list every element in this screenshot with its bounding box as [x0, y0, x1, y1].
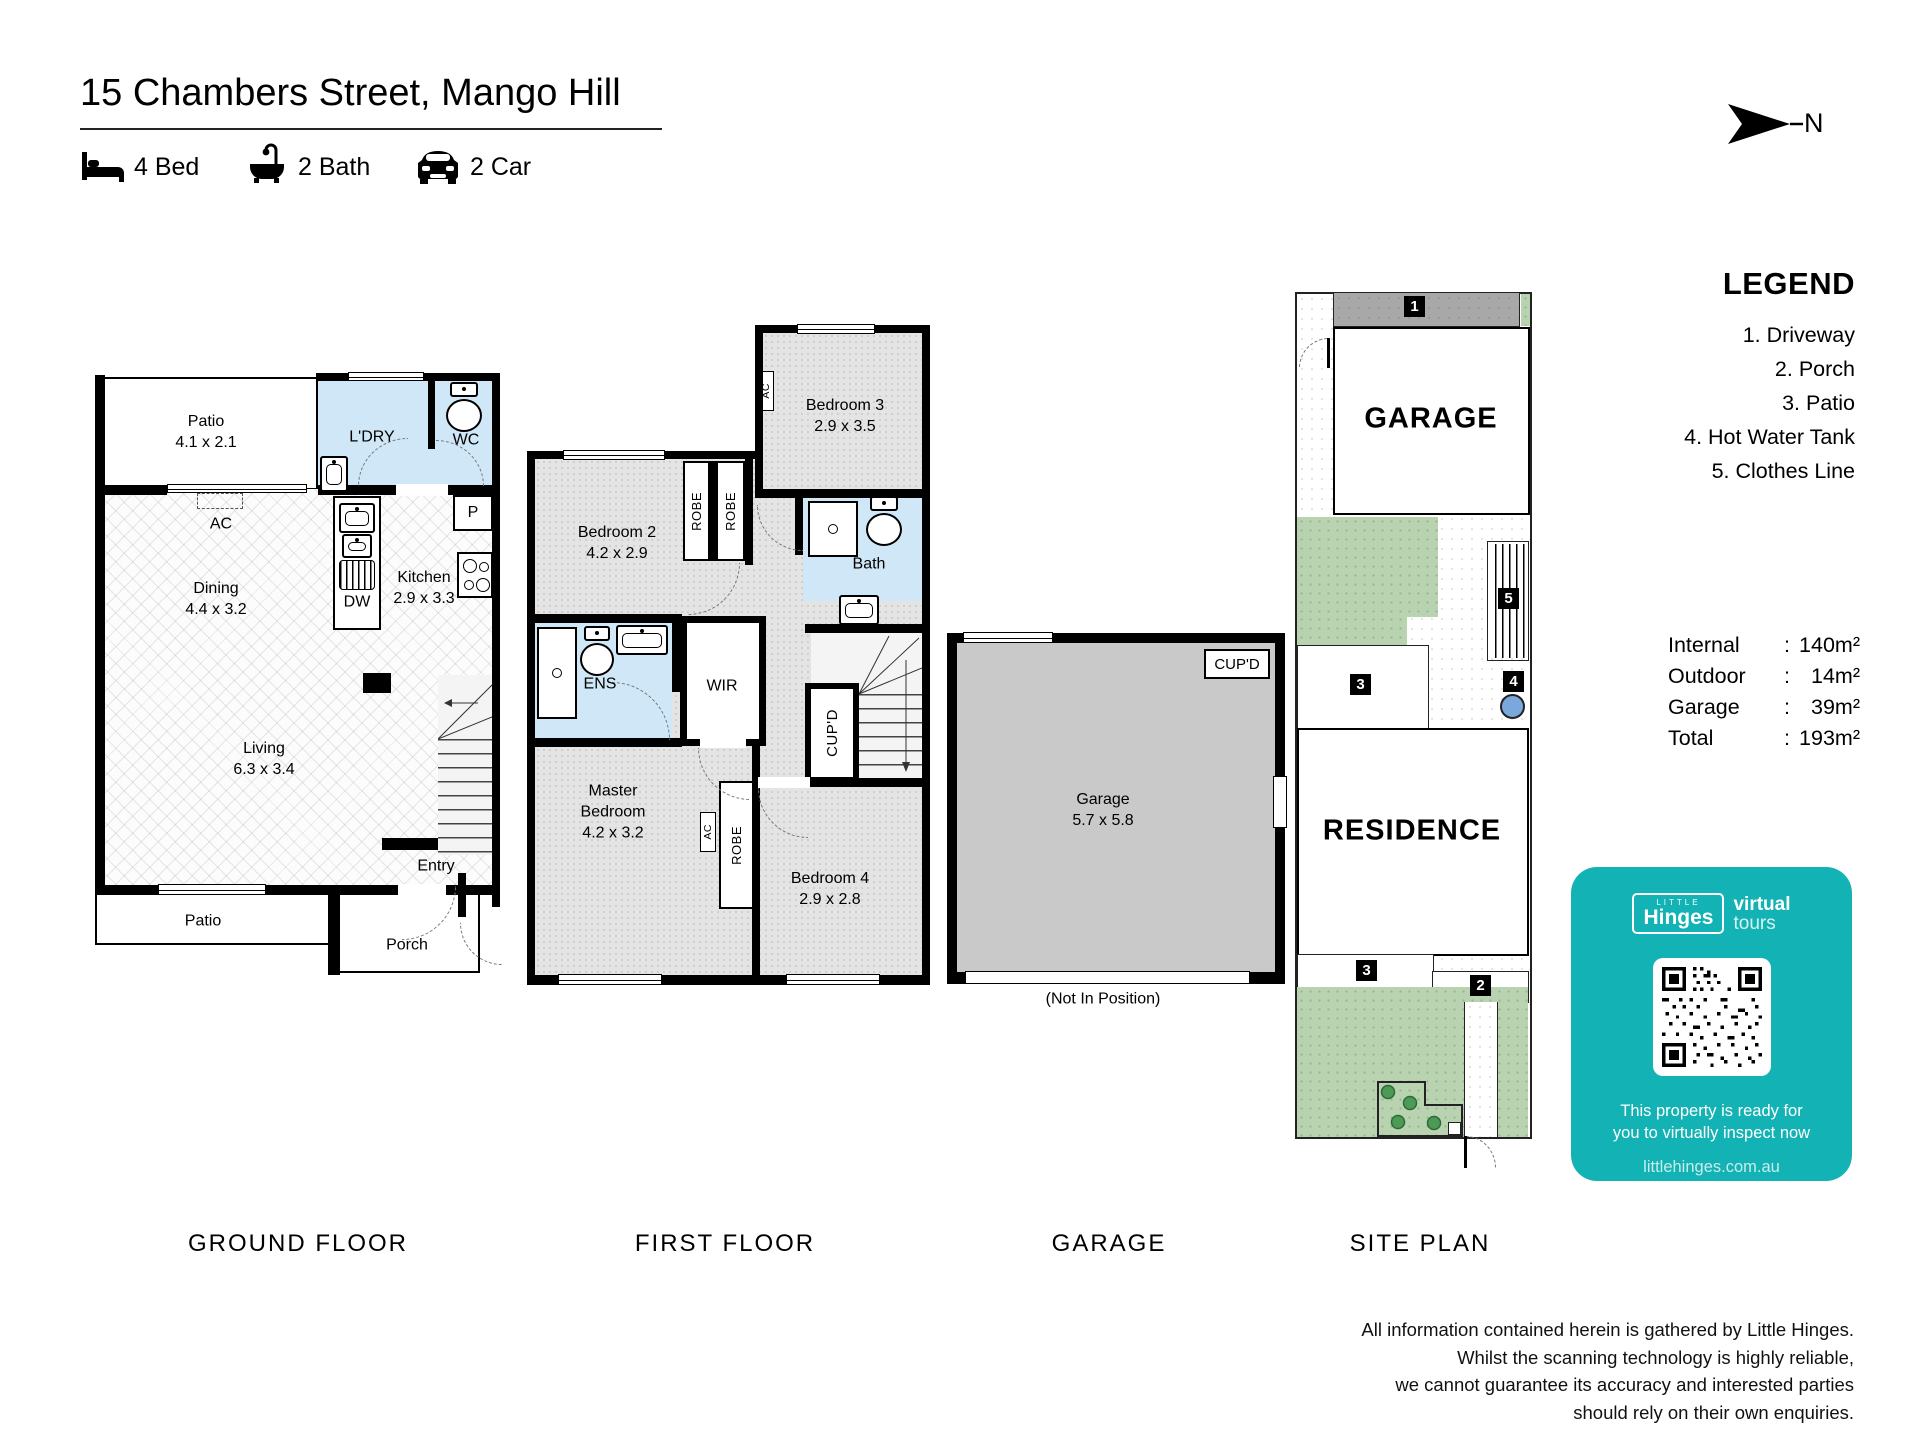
car-count: 2 Car — [470, 148, 531, 186]
room-label-bedroom4: Bedroom 42.9 x 2.8 — [791, 868, 869, 910]
room-label-dining: Dining4.4 x 3.2 — [185, 578, 246, 620]
page-title: 15 Chambers Street, Mango Hill — [80, 72, 621, 115]
legend-item: 2. Porch — [1545, 352, 1855, 386]
robe-label: ROBE — [689, 492, 704, 531]
site-garage-label: GARAGE — [1364, 403, 1497, 436]
marker-porch: 2 — [1470, 975, 1491, 996]
caption-site-plan: SITE PLAN — [1350, 1230, 1491, 1258]
stove-icon — [457, 552, 493, 598]
lawn-mid — [1297, 615, 1407, 648]
badge-message-line1: This property is ready for — [1620, 1102, 1802, 1120]
area-row: Garage:39m² — [1668, 692, 1860, 723]
area-row: Outdoor:14m² — [1668, 661, 1860, 692]
room-label-bath: Bath — [853, 554, 886, 575]
disclaimer-line: All information contained herein is gath… — [0, 1316, 1854, 1344]
door-arc — [1466, 1136, 1496, 1168]
room-label-ens: ENS — [584, 674, 617, 695]
wall-segment — [710, 461, 716, 561]
area-row: Total:193m² — [1668, 723, 1860, 754]
staircase — [438, 675, 492, 855]
label-dw: DW — [344, 592, 371, 613]
room-label-patio-top: Patio4.1 x 2.1 — [175, 411, 236, 453]
label-ac: AC — [210, 514, 232, 535]
lawn-mid — [1297, 517, 1438, 617]
door-gap — [700, 738, 746, 748]
dishwasher-icon — [339, 560, 375, 590]
wall-segment — [95, 485, 167, 495]
caption-first-floor: FIRST FLOOR — [635, 1230, 815, 1258]
badge-website: littlehinges.com.au — [1643, 1158, 1780, 1177]
bed-count: 4 Bed — [134, 148, 199, 186]
brand-logo: LITTLE Hinges virtual tours — [1632, 893, 1790, 934]
robe-box: ROBE — [683, 461, 710, 561]
room-label-entry: Entry — [417, 856, 454, 877]
toilet-icon — [446, 382, 482, 432]
bath-icon — [246, 140, 288, 184]
wall-segment — [755, 325, 763, 497]
room-label-living: Living6.3 x 3.4 — [233, 738, 294, 780]
wall-segment — [947, 633, 957, 984]
ac-label: AC — [702, 824, 714, 840]
window — [158, 884, 266, 895]
bed-icon — [80, 150, 126, 184]
room-label-master: MasterBedroom4.2 x 3.2 — [581, 781, 646, 844]
caption-ground-floor: GROUND FLOOR — [188, 1230, 408, 1258]
disclaimer-line: Whilst the scanning technology is highly… — [0, 1344, 1854, 1372]
legend-item: 4. Hot Water Tank — [1545, 420, 1855, 454]
room-label-bedroom2: Bedroom 24.2 x 2.9 — [578, 522, 656, 564]
legend-item: 3. Patio — [1545, 386, 1855, 420]
window — [563, 450, 665, 460]
wall-segment — [755, 489, 930, 498]
laundry-sink-icon — [320, 456, 348, 492]
cupboard-label: CUP'D — [824, 709, 841, 757]
caption-garage: GARAGE — [1052, 1230, 1167, 1258]
room-label-bedroom3: Bedroom 32.9 x 3.5 — [806, 395, 884, 437]
window — [167, 484, 307, 493]
driveway — [1333, 292, 1520, 327]
wall-segment — [328, 891, 340, 975]
wall-segment — [363, 673, 391, 693]
toilet-icon — [580, 626, 614, 676]
qr-code — [1653, 958, 1771, 1076]
wall-segment — [745, 457, 753, 565]
pantry-box: P — [453, 495, 493, 531]
ac-box: AC — [700, 812, 716, 852]
wall-segment — [428, 379, 435, 449]
wall-segment — [95, 375, 105, 895]
badge-message-line2: you to virtually inspect now — [1613, 1124, 1810, 1142]
door-gap — [758, 777, 810, 788]
door-leaf — [458, 873, 466, 917]
window — [786, 974, 880, 985]
vanity-sink-icon — [616, 625, 668, 655]
lawn-strip — [1521, 294, 1530, 326]
virtual-tour-badge: LITTLE Hinges virtual tours — [1571, 867, 1852, 1181]
legend-item: 5. Clothes Line — [1545, 454, 1855, 488]
door-gap — [1273, 776, 1287, 828]
wall-segment — [672, 618, 680, 692]
area-row: Internal:140m² — [1668, 630, 1860, 661]
room-label-kitchen: Kitchen2.9 x 3.3 — [393, 567, 454, 609]
robe-box: ROBE — [716, 461, 745, 561]
garage-door — [965, 971, 1250, 984]
hot-water-tank — [1500, 694, 1525, 719]
shower-icon — [808, 501, 858, 557]
shower-icon — [537, 627, 577, 719]
marker-clothes-line: 5 — [1498, 588, 1519, 609]
disclaimer-line: should rely on their own enquiries. — [0, 1399, 1854, 1427]
wall-segment — [492, 373, 500, 907]
wall-segment — [922, 325, 930, 985]
bath-count: 2 Bath — [298, 148, 370, 186]
legend-title: LEGEND — [1545, 266, 1855, 302]
brand-hinges: Hinges — [1643, 907, 1713, 929]
area-summary: Internal:140m² Outdoor:14m² Garage:39m² … — [1668, 630, 1860, 754]
gate-post — [1327, 338, 1330, 368]
marker-patio: 3 — [1356, 960, 1377, 981]
door-leaf — [1464, 1136, 1467, 1168]
legend: LEGEND 1. Driveway 2. Porch 3. Patio 4. … — [1545, 266, 1855, 488]
wall-segment — [382, 838, 440, 850]
robe-label: ROBE — [723, 492, 738, 531]
cupboard-label: CUP'D — [1214, 656, 1259, 673]
room-label-ldry: L'DRY — [349, 427, 394, 448]
room-label-porch: Porch — [386, 935, 428, 956]
window — [558, 974, 662, 985]
marker-driveway: 1 — [1404, 296, 1425, 317]
wall-segment — [805, 624, 930, 633]
garage-note: (Not In Position) — [1046, 989, 1161, 1010]
vanity-sink-icon — [839, 595, 879, 625]
title-underline — [80, 128, 662, 130]
robe-label: ROBE — [729, 826, 744, 865]
room-label-wir: WIR — [706, 676, 737, 697]
cupboard-box: CUP'D — [1204, 649, 1270, 679]
wall-segment — [527, 451, 535, 985]
kitchen-sink-icon — [342, 534, 372, 558]
north-arrow-icon — [1726, 98, 1804, 152]
robe-box: ROBE — [719, 781, 754, 909]
legend-item: 1. Driveway — [1545, 318, 1855, 352]
cupboard-box: CUP'D — [805, 683, 859, 783]
kitchen-sink-icon — [339, 503, 375, 533]
gf-interior — [103, 489, 492, 889]
ac-unit — [197, 493, 243, 509]
path — [1464, 1002, 1498, 1137]
marker-hot-water: 4 — [1503, 671, 1524, 692]
window — [963, 632, 1053, 643]
wall-segment — [530, 614, 682, 623]
site-residence-label: RESIDENCE — [1323, 815, 1501, 848]
room-label-wc: WC — [453, 430, 480, 451]
window — [797, 324, 875, 334]
pantry-label: P — [468, 504, 479, 522]
brand-tours: tours — [1733, 914, 1790, 933]
disclaimer-line: we cannot guarantee its accuracy and int… — [0, 1371, 1854, 1399]
step-box — [1448, 1122, 1461, 1135]
car-icon — [414, 148, 462, 184]
toilet-icon — [866, 496, 902, 546]
hinges-logo-box: LITTLE Hinges — [1632, 893, 1724, 934]
room-label-garage: Garage5.7 x 5.8 — [1072, 789, 1133, 831]
room-label-patio-bottom: Patio — [185, 911, 221, 932]
marker-patio: 3 — [1350, 674, 1371, 695]
brand-virtual: virtual — [1733, 895, 1790, 914]
north-label: N — [1804, 108, 1824, 139]
disclaimer: All information contained herein is gath… — [0, 1316, 1854, 1426]
window — [348, 372, 424, 381]
